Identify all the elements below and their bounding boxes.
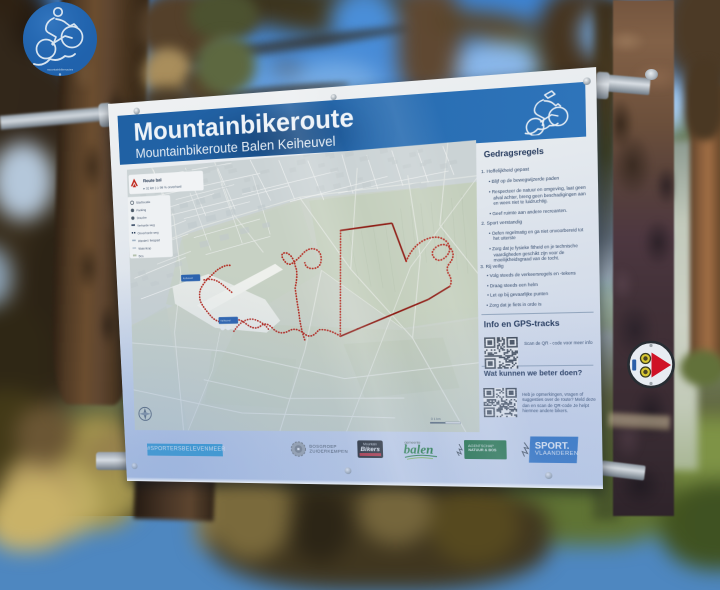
svg-text:Startlocatie: Startlocatie — [136, 200, 151, 205]
svg-text:Waterloop: Waterloop — [138, 246, 151, 251]
svg-text:Keiheuvel: Keiheuvel — [183, 278, 193, 280]
svg-text:0 1 km: 0 1 km — [431, 417, 441, 421]
svg-text:Parking: Parking — [136, 208, 146, 213]
svg-text:Bos: Bos — [139, 254, 145, 258]
svg-text:mountainbikeroutes: mountainbikeroutes — [47, 68, 74, 72]
svg-text:Verharde weg: Verharde weg — [137, 223, 155, 228]
svg-text:Douche: Douche — [137, 215, 147, 220]
svg-text:Route bal: Route bal — [143, 177, 162, 183]
svg-text:Keiheuvel: Keiheuvel — [220, 320, 231, 322]
